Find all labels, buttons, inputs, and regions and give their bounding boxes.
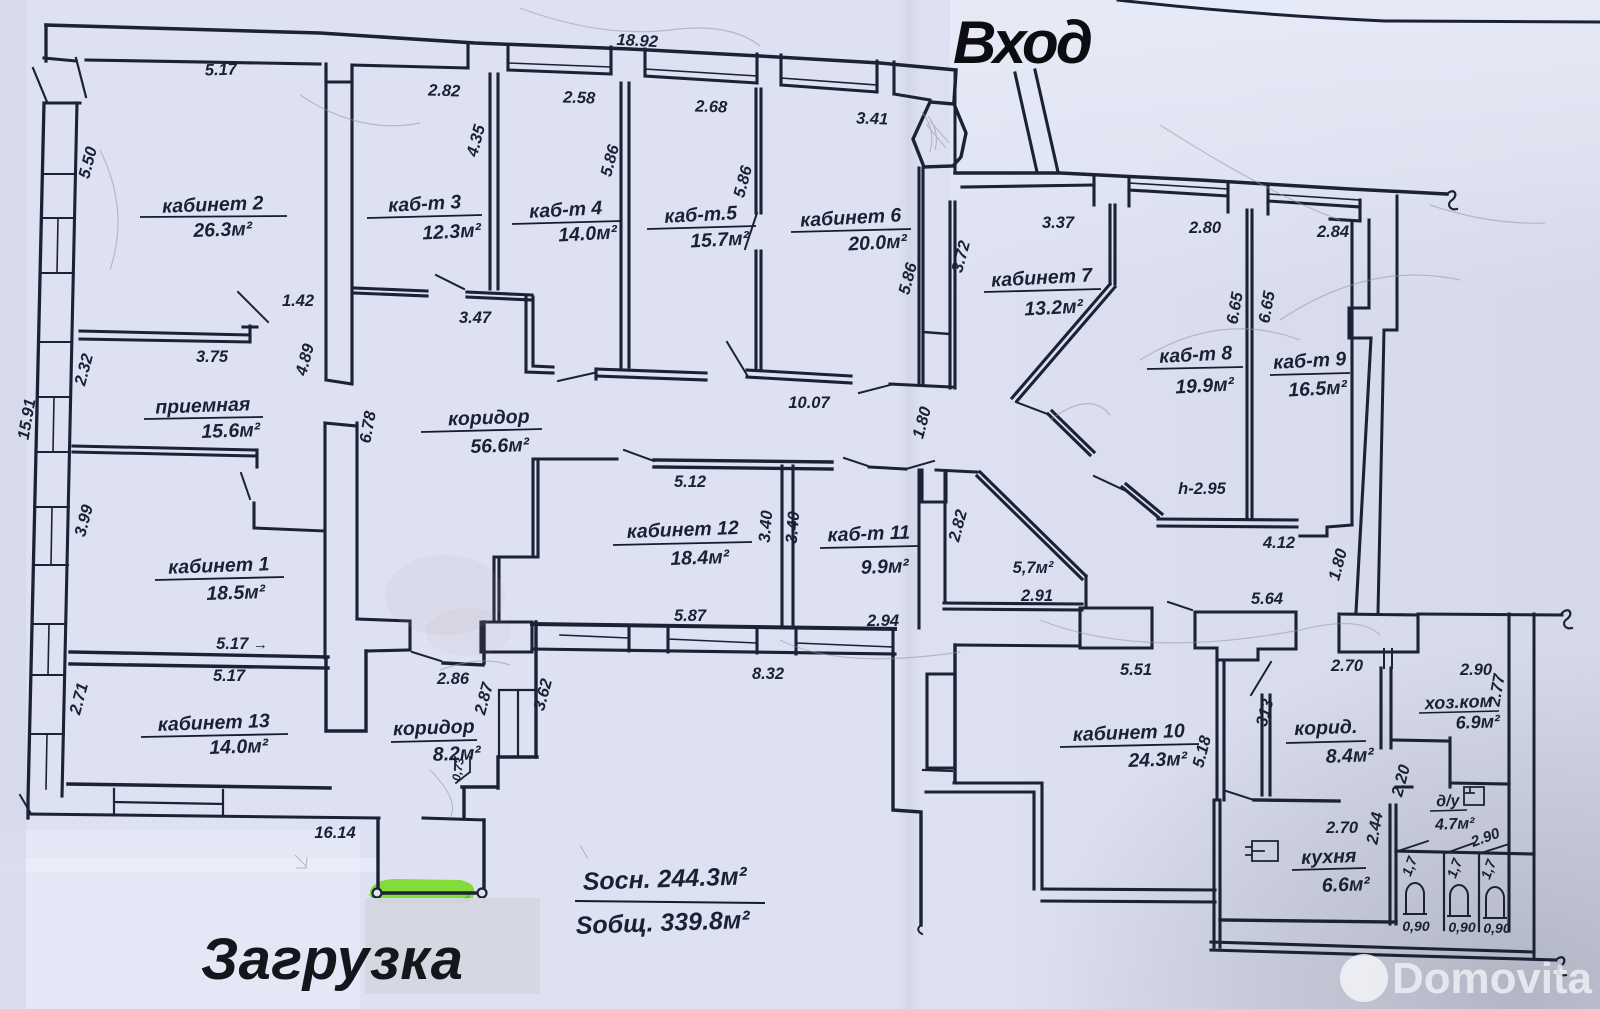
svg-text:5.64: 5.64	[1251, 590, 1283, 608]
svg-text:коридор: коридор	[393, 716, 475, 741]
svg-text:8.4м²: 8.4м²	[1325, 744, 1374, 768]
svg-text:2.94: 2.94	[866, 612, 899, 630]
svg-text:каб-т 4: каб-т 4	[529, 197, 603, 223]
svg-text:каб-т 9: каб-т 9	[1273, 348, 1347, 374]
svg-text:5.51: 5.51	[1120, 661, 1152, 679]
svg-text:18.92: 18.92	[616, 31, 658, 51]
svg-text:Загрузка: Загрузка	[201, 927, 463, 992]
svg-text:13.2м²: 13.2м²	[1024, 295, 1084, 320]
svg-text:20.0м²: 20.0м²	[847, 230, 908, 255]
svg-text:коридор: коридор	[448, 406, 530, 431]
svg-text:5.17: 5.17	[204, 60, 238, 79]
svg-text:26.3м²: 26.3м²	[192, 218, 253, 242]
svg-text:2.84: 2.84	[1316, 223, 1349, 241]
svg-text:5.17: 5.17	[213, 667, 246, 685]
svg-text:кабинет 12: кабинет 12	[626, 517, 739, 543]
svg-text:кабинет 10: кабинет 10	[1072, 720, 1185, 746]
svg-text:3.40: 3.40	[783, 510, 804, 544]
svg-text:хоз.ком: хоз.ком	[1423, 691, 1493, 713]
svg-text:2.80: 2.80	[1188, 219, 1222, 237]
svg-text:10.07: 10.07	[788, 394, 830, 412]
svg-text:56.6м²: 56.6м²	[470, 434, 530, 458]
svg-text:каб-т 3: каб-т 3	[388, 191, 462, 217]
svg-text:кухня: кухня	[1301, 845, 1358, 869]
svg-text:3.40: 3.40	[756, 509, 777, 543]
svg-text:15.7м²: 15.7м²	[690, 227, 750, 252]
svg-text:14.0м²: 14.0м²	[209, 735, 269, 759]
svg-text:2.68: 2.68	[694, 97, 729, 116]
svg-text:6.6м²: 6.6м²	[1321, 873, 1370, 897]
svg-text:корид.: корид.	[1294, 716, 1358, 740]
svg-text:кабинет 2: кабинет 2	[162, 192, 264, 218]
svg-text:h-2.95: h-2.95	[1178, 480, 1227, 498]
svg-text:5.17 →: 5.17 →	[216, 635, 268, 653]
svg-text:5.12: 5.12	[674, 473, 706, 491]
svg-text:2.90: 2.90	[1459, 661, 1493, 679]
svg-text:5,7м²: 5,7м²	[1013, 559, 1054, 577]
svg-text:3.47: 3.47	[459, 309, 492, 327]
svg-text:9.9м²: 9.9м²	[860, 555, 909, 579]
svg-text:3.37: 3.37	[1042, 214, 1075, 232]
svg-text:2.82: 2.82	[427, 81, 461, 100]
svg-text:3.75: 3.75	[196, 348, 229, 366]
svg-text:д/у: д/у	[1436, 793, 1461, 811]
svg-text:1.42: 1.42	[282, 292, 314, 310]
svg-text:19.9м²: 19.9м²	[1175, 373, 1235, 398]
svg-text:4.7м²: 4.7м²	[1434, 815, 1476, 833]
svg-text:12.3м²: 12.3м²	[422, 219, 482, 244]
svg-text:Sосн. 244.3м²: Sосн. 244.3м²	[582, 862, 748, 896]
svg-text:5.87: 5.87	[674, 607, 707, 625]
svg-text:0,90: 0,90	[1483, 920, 1510, 936]
svg-text:4.12: 4.12	[1262, 534, 1295, 552]
svg-text:2.58: 2.58	[562, 88, 597, 107]
svg-text:каб-т.5: каб-т.5	[664, 202, 739, 228]
svg-text:8.32: 8.32	[752, 665, 784, 683]
svg-text:16.14: 16.14	[314, 824, 355, 842]
svg-text:2.70: 2.70	[1330, 657, 1364, 675]
svg-text:2.70: 2.70	[1325, 819, 1359, 837]
svg-text:2.86: 2.86	[436, 670, 470, 688]
svg-text:приемная: приемная	[155, 393, 251, 418]
svg-text:8.2м²: 8.2м²	[432, 742, 481, 766]
svg-text:каб-т 11: каб-т 11	[827, 522, 910, 547]
svg-text:15.6м²: 15.6м²	[201, 419, 261, 443]
svg-text:24.3м²: 24.3м²	[1127, 748, 1188, 772]
svg-text:каб-т 8: каб-т 8	[1159, 342, 1233, 368]
svg-text:18.5м²: 18.5м²	[206, 581, 266, 605]
svg-text:0,90: 0,90	[1402, 918, 1429, 934]
svg-text:14.0м²: 14.0м²	[558, 221, 618, 246]
svg-text:6.9м²: 6.9м²	[1455, 711, 1501, 733]
svg-text:Domovita: Domovita	[1392, 954, 1593, 1003]
svg-text:18.4м²: 18.4м²	[670, 546, 730, 570]
svg-text:16.5м²: 16.5м²	[1288, 376, 1348, 401]
svg-text:0,90: 0,90	[1448, 919, 1475, 935]
svg-text:2.91: 2.91	[1020, 587, 1053, 605]
svg-text:Вход: Вход	[953, 9, 1093, 76]
svg-text:кабинет 13: кабинет 13	[157, 710, 270, 736]
svg-text:кабинет 1: кабинет 1	[168, 553, 270, 579]
svg-text:3.41: 3.41	[856, 109, 889, 128]
